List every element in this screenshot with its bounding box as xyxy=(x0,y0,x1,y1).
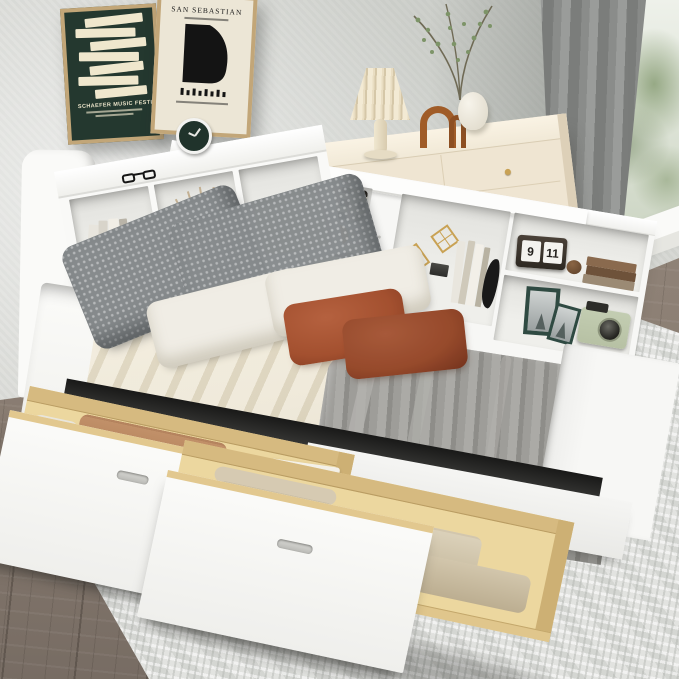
bedroom-product-photo: SCHAEFER MUSIC FESTIVAL SAN SEBASTIAN xyxy=(0,0,679,679)
poster-left-subline xyxy=(95,113,133,117)
dresser-knob xyxy=(504,169,511,176)
piano-key-bar xyxy=(75,28,135,39)
vase-branches xyxy=(398,0,508,100)
poster-right-title: SAN SEBASTIAN xyxy=(167,4,247,17)
grand-piano-silhouette xyxy=(174,22,235,87)
piano-key-bar xyxy=(84,13,143,29)
flip-clock-minute: 11 xyxy=(542,242,563,264)
poster-music-festival: SCHAEFER MUSIC FESTIVAL xyxy=(60,3,164,145)
table-lamp-base xyxy=(364,150,397,159)
table-lamp-column xyxy=(374,119,387,154)
flip-clock-hour: 9 xyxy=(520,240,541,262)
piano-key-bar xyxy=(79,52,139,62)
drawer-handle xyxy=(276,538,313,554)
piano-keys-row xyxy=(162,87,242,98)
round-vase xyxy=(458,92,488,130)
piano-key-bar xyxy=(78,75,138,86)
flip-clock: 9 11 xyxy=(515,235,567,271)
drawer-handle xyxy=(116,470,149,485)
rust-accent-pillow-front xyxy=(341,308,469,380)
round-shelf-clock xyxy=(176,118,212,154)
piano-key-bar xyxy=(95,85,148,99)
camera-lens xyxy=(596,316,624,344)
poster-right-subline xyxy=(184,17,228,21)
poster-san-sebastian: SAN SEBASTIAN xyxy=(150,0,257,139)
poster-right-dateline xyxy=(176,101,228,106)
piano-key-bar xyxy=(89,61,144,76)
piano-key-bar xyxy=(90,37,147,51)
